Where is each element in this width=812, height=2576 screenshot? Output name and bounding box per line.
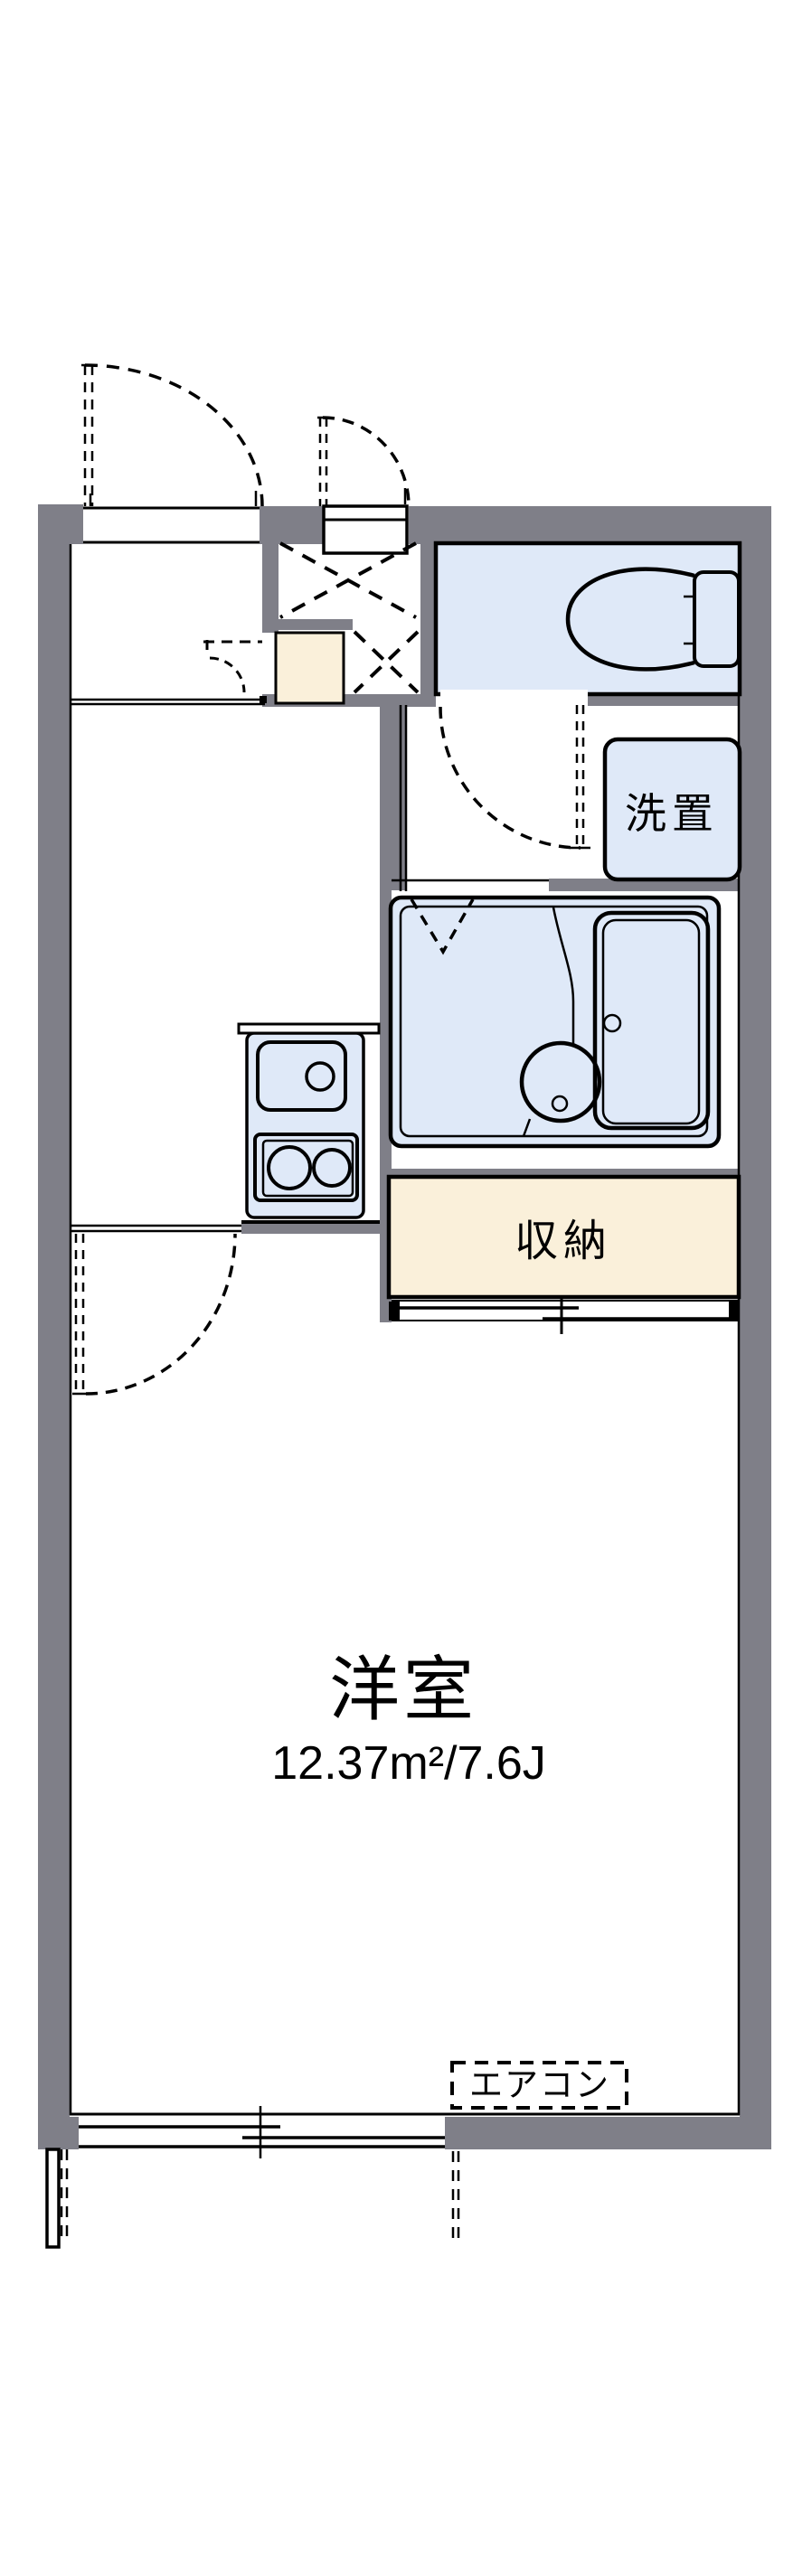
room-door-swing-arc bbox=[86, 1234, 235, 1394]
washbasin-icon bbox=[522, 1043, 600, 1121]
wall-left bbox=[38, 506, 70, 2149]
toilet-door-swing-arc bbox=[440, 707, 581, 848]
closet-door-end-stub bbox=[389, 1302, 400, 1321]
faucet-icon bbox=[307, 1063, 334, 1090]
door-swing-arc bbox=[85, 365, 262, 506]
burner-icon bbox=[314, 1150, 350, 1186]
wall-entrance-left bbox=[262, 540, 279, 633]
entrance-step-area bbox=[276, 633, 344, 703]
partition-stub bbox=[47, 2149, 59, 2247]
wall-right bbox=[740, 506, 771, 2149]
wall-bottom-right bbox=[445, 2117, 771, 2149]
door-stop-block bbox=[260, 696, 267, 703]
room-label-western-room: 洋室 bbox=[329, 1650, 477, 1729]
wall-entrance-step-notch bbox=[276, 619, 353, 630]
wall-top-segment-b bbox=[260, 506, 323, 544]
wall-top-segment-c bbox=[409, 506, 771, 544]
wall-entrance-right bbox=[420, 540, 436, 694]
storage-label: 収納 bbox=[515, 1217, 612, 1265]
aircon-label: エアコン bbox=[469, 2066, 610, 2103]
floor-plan-page: 洋室 12.37m²/7.6J 収納 洗置 エアコン bbox=[0, 0, 812, 2576]
counter-lip bbox=[239, 1024, 379, 1033]
burner-icon bbox=[269, 1147, 310, 1189]
washing-machine-label: 洗置 bbox=[625, 790, 719, 837]
wall-bottom-left-corner bbox=[38, 2117, 79, 2149]
toilet-door-opening bbox=[440, 690, 588, 707]
entrance-step bbox=[324, 506, 407, 553]
room-area-label: 12.37m²/7.6J bbox=[271, 1737, 546, 1790]
closet-door-end-stub bbox=[729, 1302, 740, 1321]
entrance-door-swing-arc bbox=[323, 418, 409, 506]
floor-plan-drawing: 洋室 12.37m²/7.6J 収納 洗置 エアコン bbox=[0, 0, 812, 2576]
cabinet-door-swing-arc bbox=[210, 658, 244, 692]
